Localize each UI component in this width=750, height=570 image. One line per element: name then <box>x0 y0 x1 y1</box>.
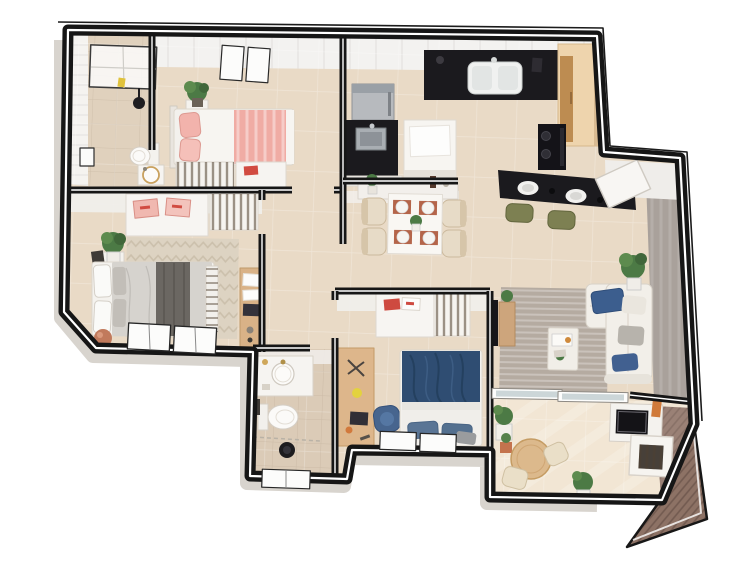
kitchen-steel-sink-basin <box>360 132 382 146</box>
dining-chair-4-back <box>460 230 466 257</box>
master-plant-leaves-2 <box>101 232 113 244</box>
bedroom1-dresser-red-deco <box>244 166 259 176</box>
bedroom1-plant-leaves-3 <box>199 83 209 93</box>
master-desk-item-2 <box>248 338 253 343</box>
floorplan-canvas: 3D isometric apartment floor plan render… <box>0 0 750 570</box>
bath1-tap <box>143 167 147 171</box>
master-plant-pot <box>107 252 120 262</box>
dining-plate-3 <box>397 231 409 243</box>
dining-chair-1-back <box>362 198 368 225</box>
dining-chair-2-back <box>362 228 368 255</box>
dining-centerpiece-pot <box>412 224 420 231</box>
master-desk-papers-2 <box>243 290 260 301</box>
kitchen-stove-knob-1 <box>542 132 551 141</box>
dining-chair-3-back <box>460 200 466 227</box>
living-plant-leaves-3 <box>635 253 647 265</box>
master-desk-papers-1 <box>243 273 260 286</box>
bedroom2-closet-slats <box>434 294 470 336</box>
balcony-plant-2 <box>501 433 511 443</box>
living-plant-leaves-2 <box>619 253 633 267</box>
kitchen-island-panel <box>409 125 450 156</box>
sliding-door-glass-2 <box>562 393 624 400</box>
bath1-shower-head <box>133 97 145 109</box>
dining-plate-2 <box>422 202 434 214</box>
bedroom1-plant-pot <box>192 98 203 107</box>
window-left-niche <box>80 148 94 166</box>
breakfast-bar-plate-1-inner <box>522 184 534 192</box>
kitchen-stove-knob-2 <box>542 150 551 159</box>
sofa-pillow-blue-1 <box>591 288 626 314</box>
kitchen-fridge-handle <box>388 92 391 116</box>
bedroom1-pillow-1 <box>179 112 201 138</box>
bedroom1-plant-leaves-2 <box>184 81 196 93</box>
master-pillow-white-1 <box>93 265 112 298</box>
bath1-soap <box>117 78 125 88</box>
balcony-grill-screen <box>616 409 649 434</box>
bedroom2-wardrobe-red-deco <box>384 298 401 310</box>
bedroom2-desk-orange-item <box>346 427 353 434</box>
living-plant-pot <box>627 278 641 290</box>
breakfast-bar-item-1 <box>549 188 555 194</box>
master-closet-slats <box>210 194 258 230</box>
kitchen-sink-basin-2 <box>498 66 518 90</box>
shapes-layer <box>58 22 707 547</box>
bedroom2-chair-seat <box>380 412 394 426</box>
master-pillow-gray-1 <box>113 267 127 295</box>
sofa-pillow-blue-2 <box>611 353 638 372</box>
master-desk-item-1 <box>247 327 254 334</box>
breakfast-bar-plate-2-inner <box>570 192 582 200</box>
bath2-item-gold <box>262 359 268 365</box>
kitchen-sink-basin-1 <box>472 66 492 90</box>
master-copper-vase-highlight <box>97 332 103 338</box>
balcony-planter-orange <box>500 442 512 453</box>
sofa-pillow-gray <box>617 325 644 346</box>
master-desk-laptop <box>243 304 259 317</box>
dining-sideboard-pot <box>368 186 377 194</box>
kitchen-counter-item-2 <box>532 58 543 73</box>
kitchen-counter-item-1 <box>436 56 444 64</box>
living-table-book <box>554 349 567 357</box>
sofa-armrest <box>604 374 652 384</box>
bath2-tap <box>281 360 286 365</box>
bedroom1-window-slab-1 <box>220 45 244 80</box>
kitchen-fridge-lid <box>352 84 394 93</box>
balcony-plant-3b <box>572 471 582 481</box>
bedroom2-desk-laptop <box>350 412 369 426</box>
sliding-door-glass-1 <box>496 390 558 397</box>
living-console-plant <box>501 290 513 302</box>
master-plant-leaves-3 <box>114 233 126 245</box>
kitchen-steel-sink-tap <box>370 124 375 129</box>
living-table-orange <box>565 337 571 343</box>
sofa-cushion-white <box>621 295 647 315</box>
floorplan-svg <box>0 0 750 570</box>
kitchen-stove-handle <box>560 128 564 166</box>
balcony-plant-1b <box>493 405 503 415</box>
bedroom1-closet-slats <box>176 162 234 188</box>
dining-plate-4 <box>423 232 435 244</box>
bedroom2-desk-yellow-item <box>352 388 362 398</box>
bedroom1-window-slab-2 <box>246 47 270 82</box>
master-bench-slats <box>206 266 218 332</box>
bar-stool-2 <box>548 210 576 229</box>
balcony-towel-orange <box>651 400 662 418</box>
master-pillow-gray-2 <box>113 299 127 327</box>
bedroom2-wardrobe-red-line <box>406 302 414 305</box>
bath2-item-box <box>262 384 270 390</box>
bath2-shower-drain-inner <box>283 446 291 454</box>
bedroom1-dresser <box>236 162 286 187</box>
kitchen-sink-faucet <box>491 57 497 63</box>
breakfast-bar-item-2 <box>597 197 603 203</box>
master-pillow-white-2 <box>93 301 112 334</box>
balcony-niche-slats <box>638 444 663 469</box>
bar-stool-1 <box>506 203 534 222</box>
dining-plate-1 <box>396 201 408 213</box>
bedroom1-pillow-2 <box>179 138 201 162</box>
window-bedroom2-2 <box>420 433 457 452</box>
bedroom1-pink-blanket-stripes <box>234 110 286 164</box>
living-tv-console <box>499 302 515 346</box>
window-bedroom2-1 <box>380 431 417 450</box>
